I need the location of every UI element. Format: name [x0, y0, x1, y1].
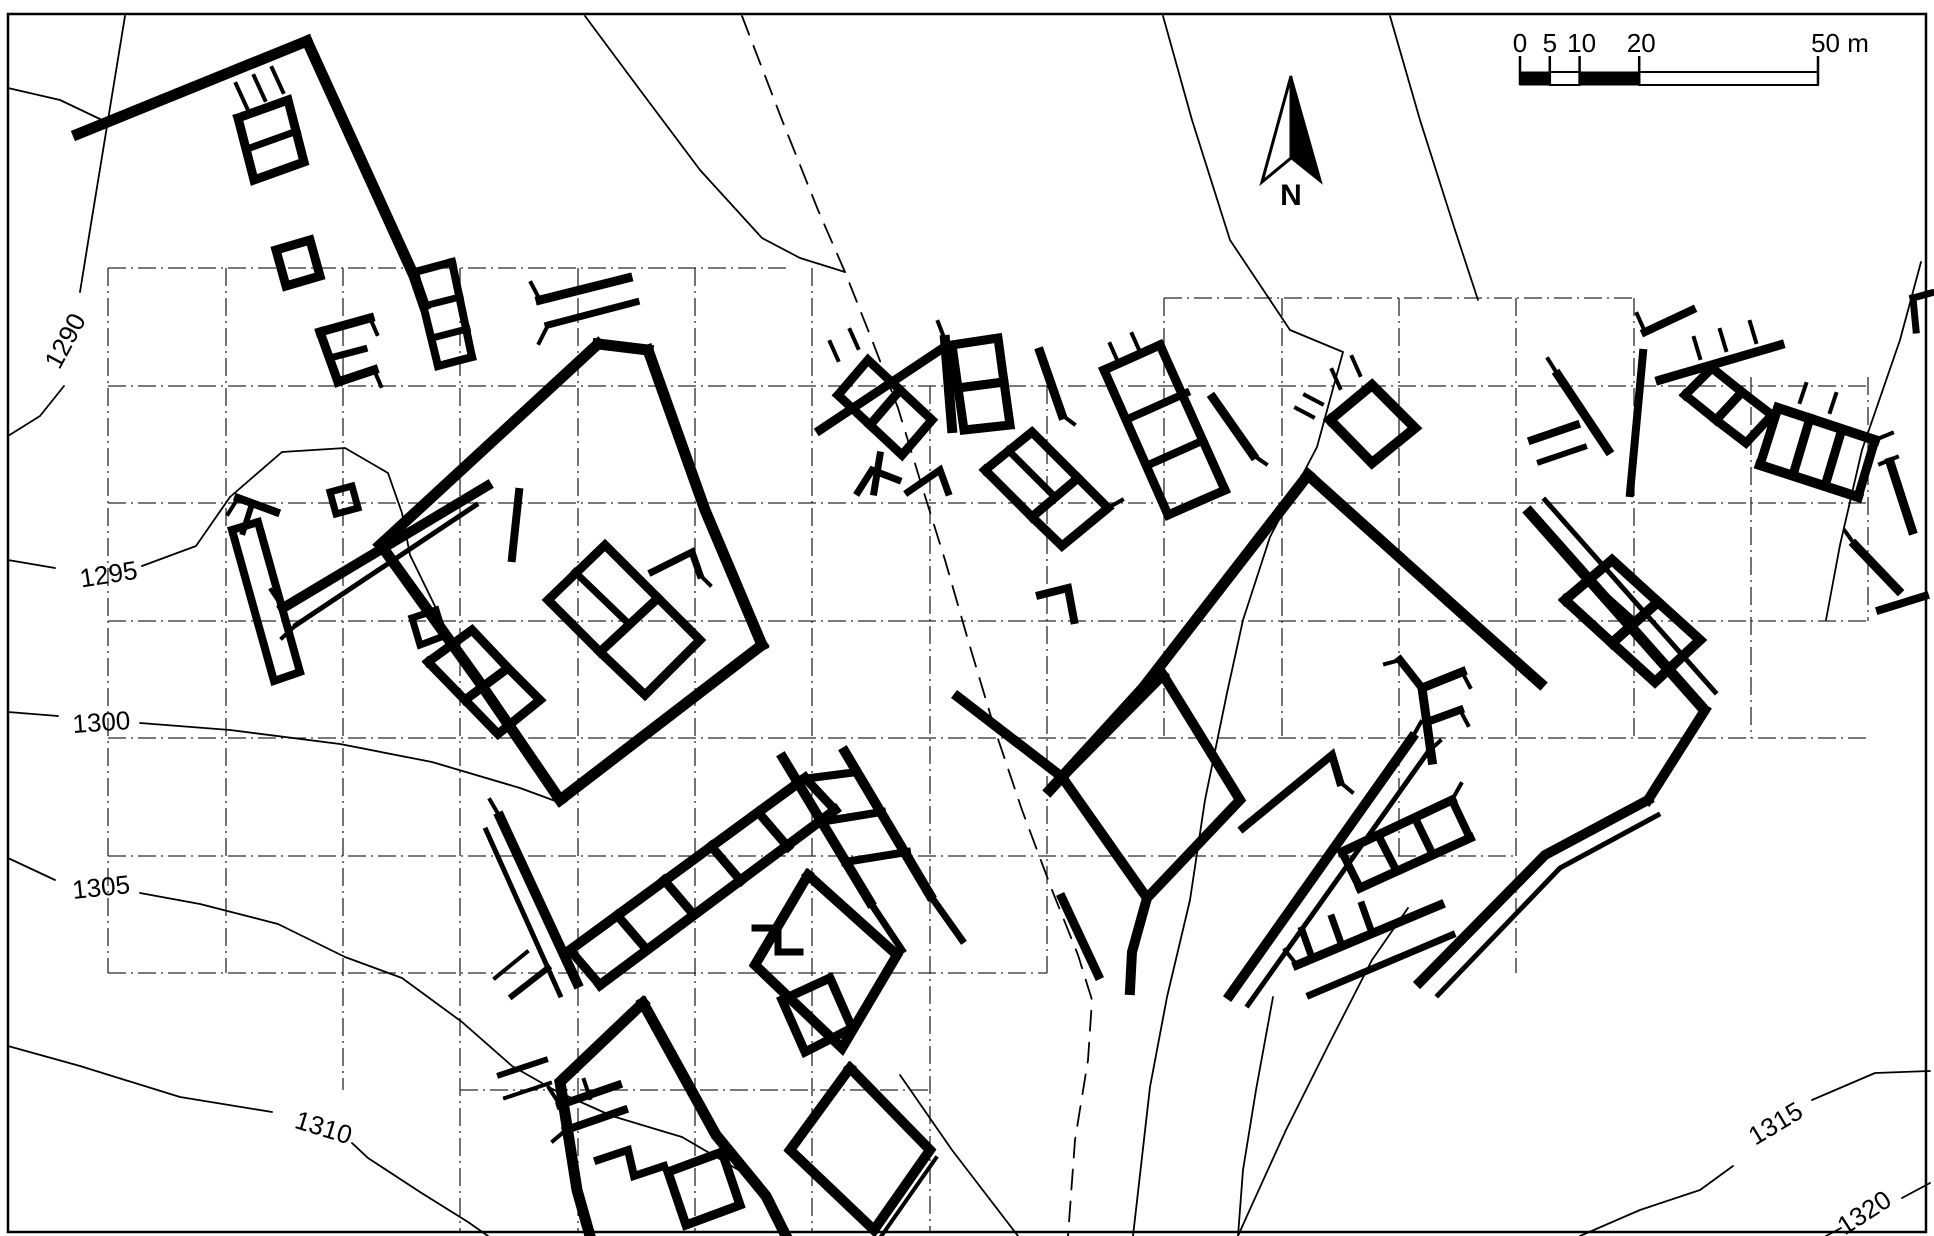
wall-segment — [598, 344, 648, 350]
scale-bar-open-segment — [1550, 72, 1580, 85]
scale-bar-solid-segment — [1580, 72, 1640, 85]
north-label: N — [1280, 179, 1302, 212]
scale-bar-label: 50 m — [1811, 28, 1869, 58]
scale-bar-label: 5 — [1543, 28, 1557, 58]
site-plan-svg: N05102050 m1290129513001305131013151320 — [0, 0, 1934, 1236]
site-plan-page: N05102050 m1290129513001305131013151320 — [0, 0, 1934, 1236]
scale-bar-label: 0 — [1513, 28, 1527, 58]
contour-label-1305: 1305 — [71, 869, 132, 905]
scale-bar-open-segment — [1639, 72, 1818, 85]
contour-label-1300: 1300 — [71, 705, 131, 739]
scale-bar-label: 20 — [1627, 28, 1656, 58]
wall-segment — [1913, 298, 1916, 330]
scale-bar-solid-segment — [1520, 72, 1550, 85]
scale-bar-label: 10 — [1567, 28, 1596, 58]
site-plan-map: N05102050 m1290129513001305131013151320 — [0, 0, 1934, 1236]
